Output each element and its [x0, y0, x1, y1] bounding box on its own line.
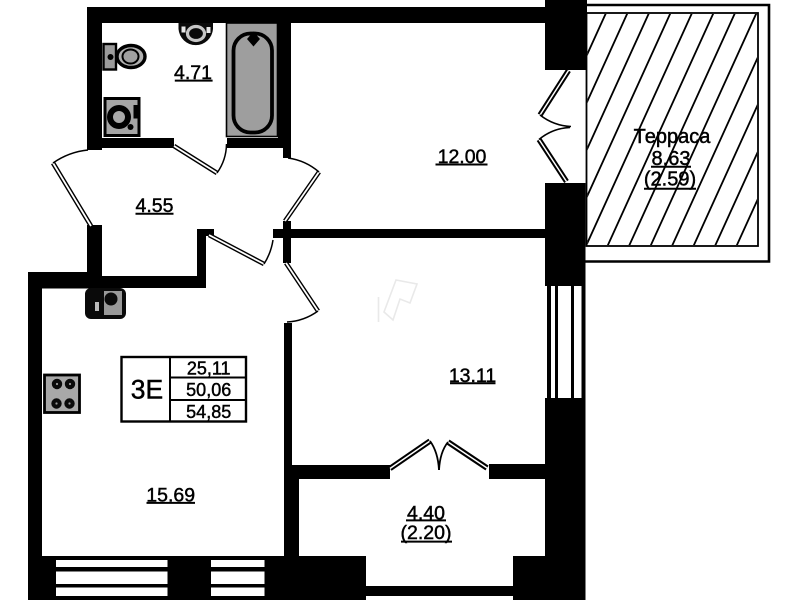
svg-text:25,11: 25,11 — [187, 358, 231, 378]
svg-text:3Е: 3Е — [131, 375, 163, 405]
svg-text:(2.59): (2.59) — [644, 169, 696, 191]
svg-text:50,06: 50,06 — [186, 380, 231, 400]
svg-text:54,85: 54,85 — [186, 402, 231, 422]
svg-text:Терраса: Терраса — [634, 126, 712, 148]
